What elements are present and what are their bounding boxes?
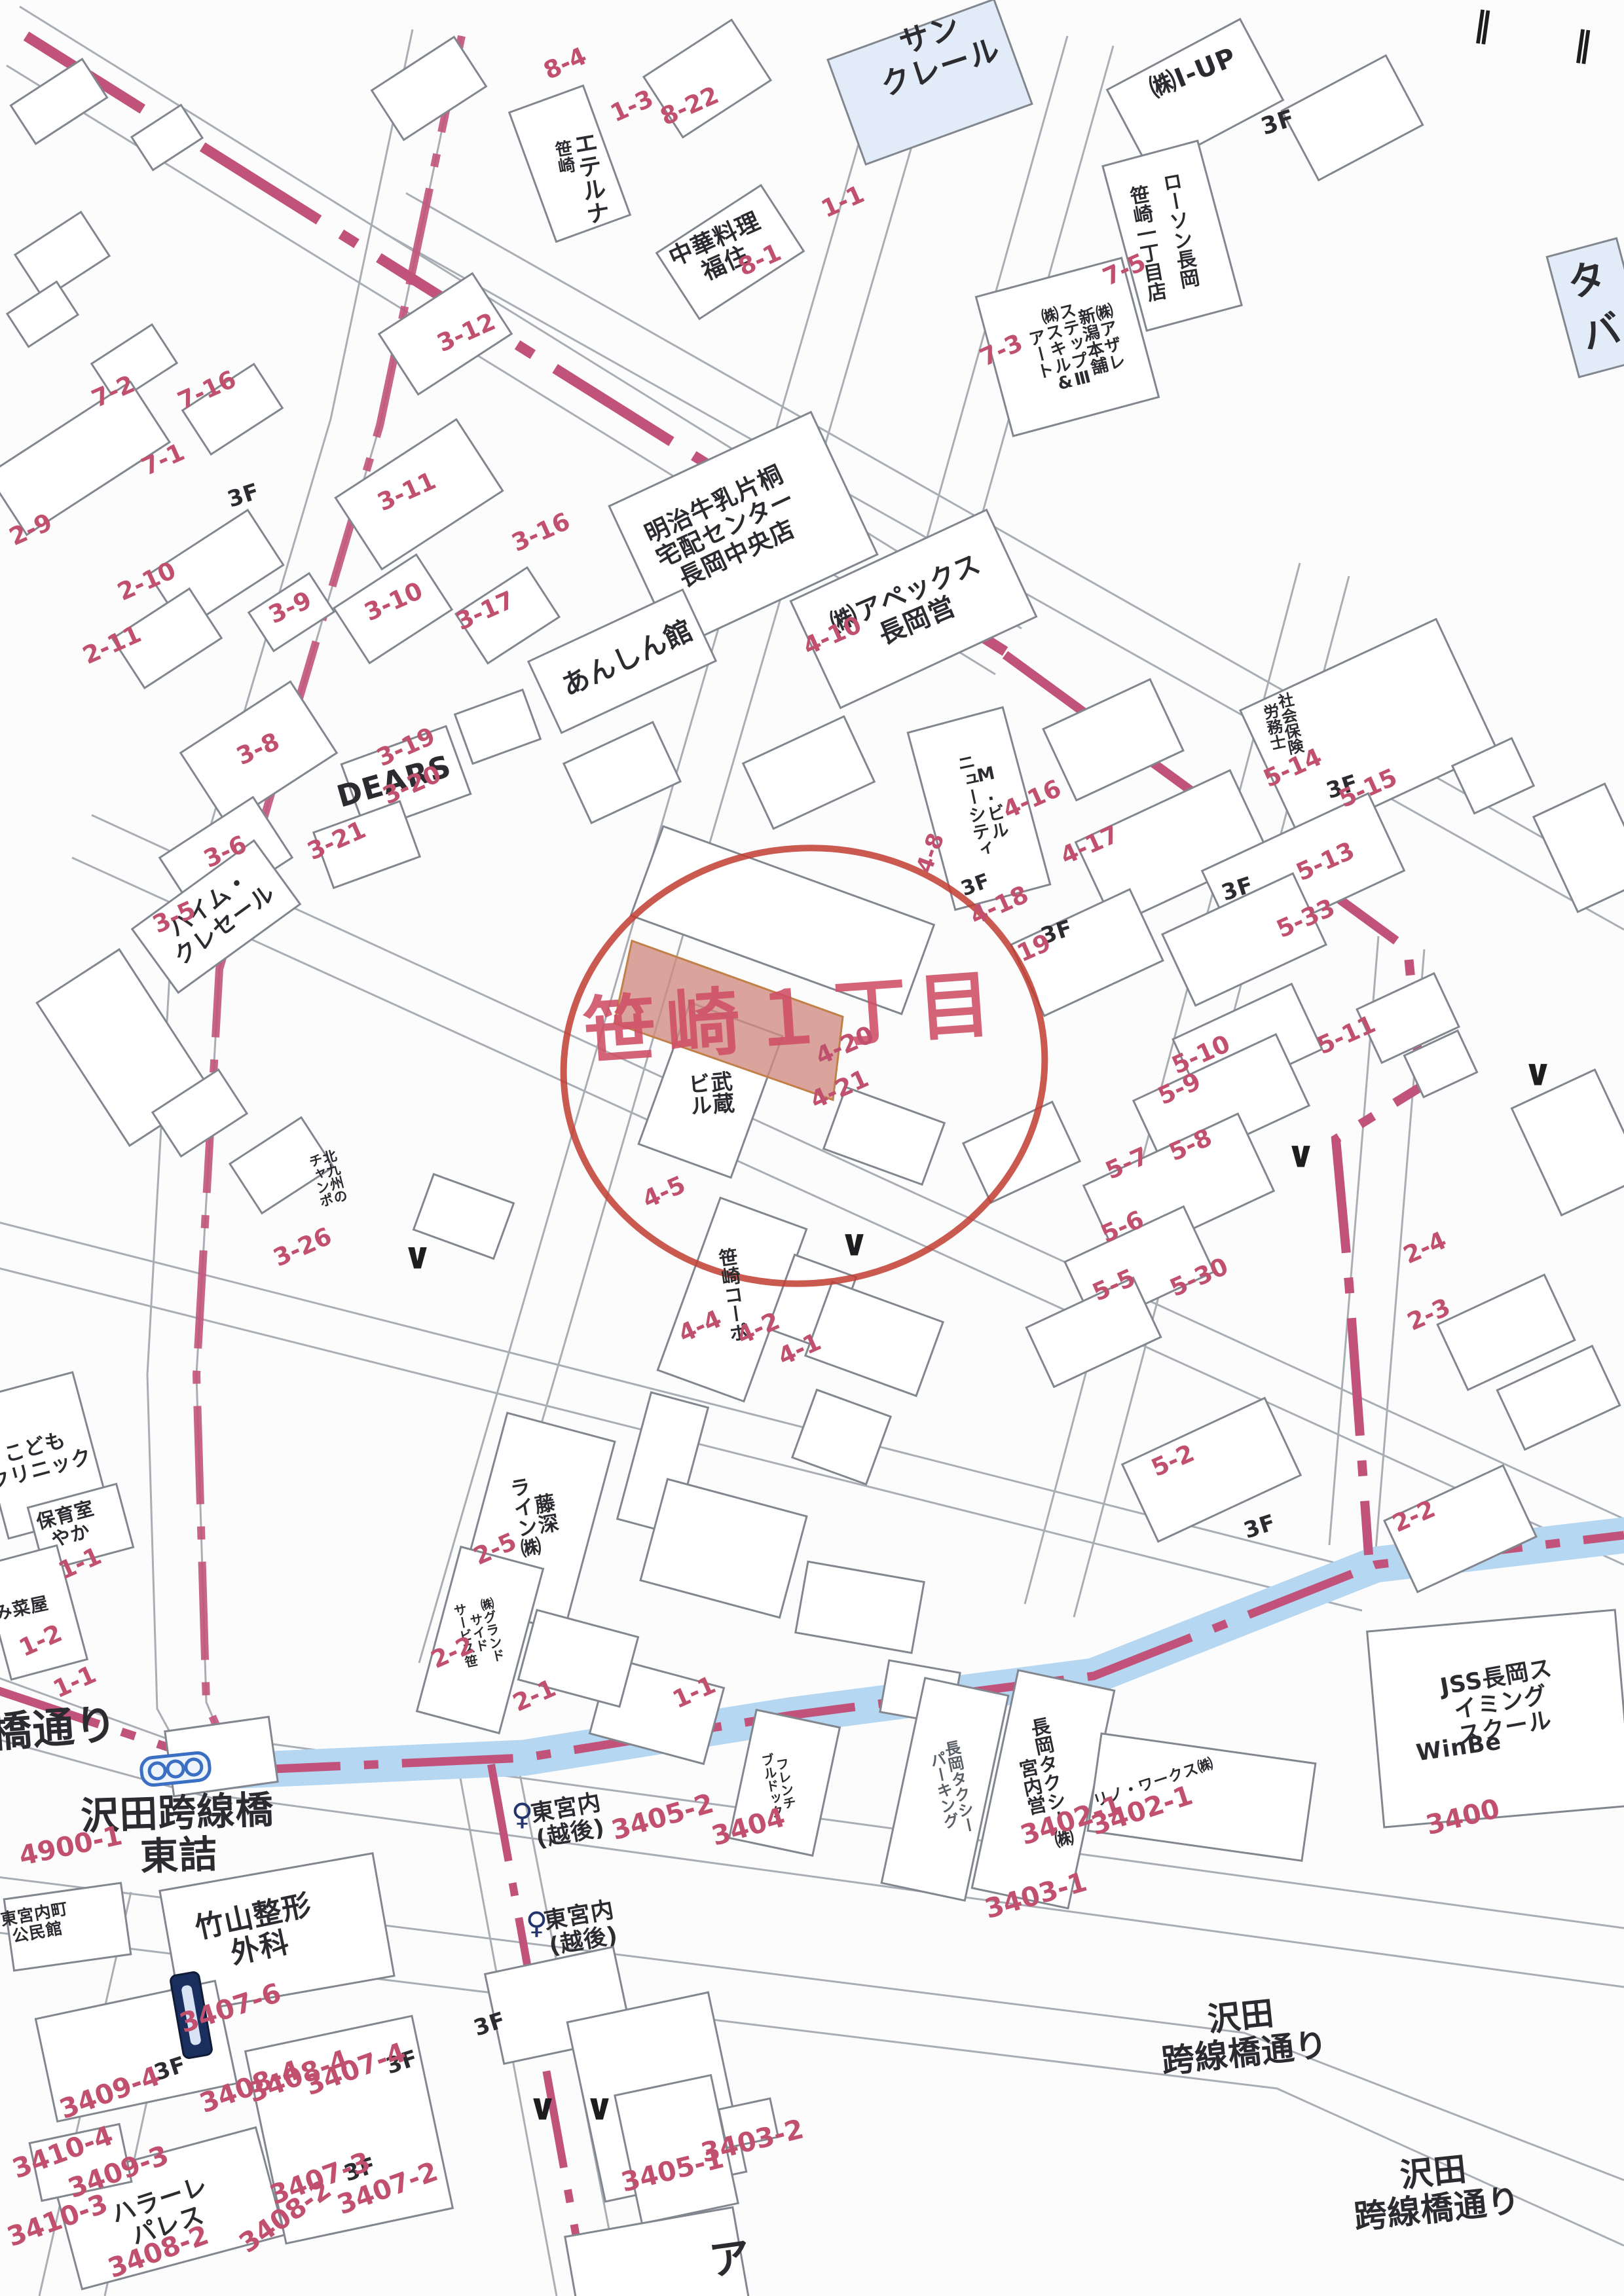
place-label: 長岡タクシー パーキング — [925, 1739, 976, 1838]
lot-number: 3-12 — [433, 308, 499, 357]
map-mark: ∨ — [585, 2088, 615, 2129]
place-label: 橋通り — [0, 1702, 119, 1757]
area-title: 笹崎１丁目 — [580, 963, 1004, 1074]
lot-number: 2-5 — [470, 1527, 521, 1570]
lot-number: 1-1 — [817, 180, 868, 223]
bus-stop-icon: ♀ — [511, 1798, 534, 1832]
lot-number: 3-9 — [265, 586, 316, 629]
place-label: 北九州の チャンポ — [306, 1148, 348, 1209]
map-mark: ‖ — [1472, 5, 1495, 45]
lot-number: 3-10 — [360, 577, 426, 627]
lot-number: 3-21 — [303, 816, 369, 866]
lot-number: 5-33 — [1272, 894, 1338, 943]
lot-number: 3-26 — [269, 1222, 335, 1272]
lot-number: 2-9 — [5, 508, 56, 551]
lot-number: 3407-4 — [301, 2037, 410, 2102]
place-label: 竹山整形 外科 — [193, 1889, 322, 1977]
lot-number: 5-30 — [1166, 1252, 1232, 1302]
lot-number: 7-3 — [976, 329, 1027, 371]
lot-number: 1-2 — [15, 1619, 66, 1662]
lot-number: 2-4 — [1399, 1226, 1450, 1269]
lot-number: 3-17 — [452, 586, 518, 636]
lot-number: 4-8 — [912, 830, 950, 877]
place-label: 3F — [1219, 872, 1257, 905]
map-mark: ∨ — [1286, 1135, 1316, 1176]
lot-number: 3-8 — [232, 727, 284, 770]
place-label: ア — [707, 2233, 754, 2284]
lot-number: 2-11 — [79, 620, 145, 670]
lot-number: 5-8 — [1165, 1123, 1216, 1166]
place-label: タ — [1563, 255, 1612, 306]
lot-number: 8-22 — [656, 81, 722, 131]
lot-number: 1-3 — [606, 84, 657, 127]
place-label: ㈱I-UP — [1146, 43, 1241, 103]
place-label: 3F — [1258, 105, 1299, 141]
place-label: 東宮内町 公民館 — [0, 1899, 73, 1947]
bus-stop-icon: ♀ — [526, 1906, 549, 1941]
place-label: バ — [1578, 307, 1624, 358]
lot-number: 5-6 — [1097, 1205, 1148, 1248]
map-mark: ∨ — [840, 1224, 870, 1265]
lot-number: 3403-2 — [698, 2114, 807, 2168]
lot-number: 8-4 — [540, 42, 591, 84]
place-label: 沢田 跨線橋通り — [1348, 2145, 1522, 2236]
place-label: エテルナ — [569, 130, 610, 227]
lot-number: 5-15 — [1335, 763, 1401, 813]
map-mark: ∨ — [528, 2088, 558, 2129]
map-labels-layer: 笹崎１丁目サン クレール㈱I-UP3Fエテルナ笹崎中華料理 福住ローソン長岡笹崎… — [0, 0, 1624, 2296]
lot-number: 2-10 — [113, 556, 179, 606]
lot-number: 5-7 — [1101, 1142, 1153, 1184]
lot-number: 3400 — [1423, 1794, 1503, 1841]
lot-number: 5-10 — [1168, 1030, 1234, 1080]
place-label: 明治牛乳片桐 宅配センター 長岡中央店 — [640, 460, 810, 597]
place-label: ㈱アザレ 新潟本舗 ステップⅢ ㈱スキル& アート — [1020, 292, 1128, 399]
lot-number: 5-9 — [1154, 1067, 1205, 1110]
lot-number: 5-11 — [1313, 1010, 1379, 1060]
place-label: ローソン長岡 — [1158, 171, 1199, 291]
place-label: 東宮内 (越後) — [529, 1790, 608, 1853]
lot-number: 4-21 — [806, 1065, 872, 1114]
lot-number: 1-1 — [49, 1660, 100, 1703]
lot-number: 2-2 — [1388, 1495, 1439, 1537]
lot-number: 1-1 — [669, 1671, 720, 1713]
lot-number: 7-2 — [88, 370, 139, 412]
lot-number: 4-16 — [999, 774, 1065, 824]
lot-number: 4-4 — [674, 1305, 726, 1347]
lot-number: 2-1 — [509, 1674, 560, 1717]
place-label: 沢田 跨線橋通り — [1156, 1990, 1329, 2080]
lot-number: 3-16 — [507, 507, 574, 557]
lot-number: 5-13 — [1292, 837, 1358, 886]
place-label: 社会保険 労務士 — [1258, 691, 1303, 759]
lot-number: 4-1 — [774, 1328, 825, 1370]
lot-number: 7-16 — [174, 365, 240, 415]
place-label: み菜屋 — [0, 1594, 50, 1624]
lot-number: 3407-6 — [176, 1978, 285, 2039]
lot-number: 3405-2 — [608, 1789, 717, 1846]
place-label: あんしん館 — [557, 614, 698, 701]
map-mark: ∨ — [1523, 1053, 1553, 1095]
map-canvas: 笹崎１丁目サン クレール㈱I-UP3Fエテルナ笹崎中華料理 福住ローソン長岡笹崎… — [0, 0, 1624, 2296]
map-mark: ∨ — [403, 1237, 433, 1278]
lot-number: 3403-1 — [982, 1867, 1090, 1925]
lot-number: 3409-4 — [56, 2061, 164, 2125]
place-label: ㈱アペックス 長岡営 — [826, 549, 997, 666]
lot-number: 5-2 — [1147, 1439, 1198, 1482]
place-label: 笹崎一丁目店 — [1126, 184, 1166, 304]
lot-number: 3-11 — [373, 467, 439, 517]
place-label: 3F — [471, 2007, 509, 2041]
lot-number: 5-5 — [1088, 1264, 1139, 1306]
place-label: WinBe — [1414, 1729, 1503, 1766]
lot-number: 4-17 — [1056, 820, 1122, 870]
place-label: こども クリニック — [0, 1423, 94, 1494]
lot-number: 3404 — [709, 1802, 788, 1852]
map-mark: ‖ — [1572, 24, 1595, 64]
lot-number: 3410-3 — [3, 2189, 112, 2253]
place-label: サン クレール — [866, 0, 1005, 102]
lot-number: 2-3 — [1403, 1293, 1454, 1336]
lot-number: 7-1 — [138, 438, 189, 481]
place-label: 東宮内 (越後) — [542, 1897, 621, 1960]
place-label: 武蔵 ビル — [685, 1070, 734, 1117]
place-label: 3F — [1241, 1510, 1279, 1543]
place-label: 3F — [225, 479, 263, 512]
lot-number: 4-5 — [638, 1171, 690, 1213]
